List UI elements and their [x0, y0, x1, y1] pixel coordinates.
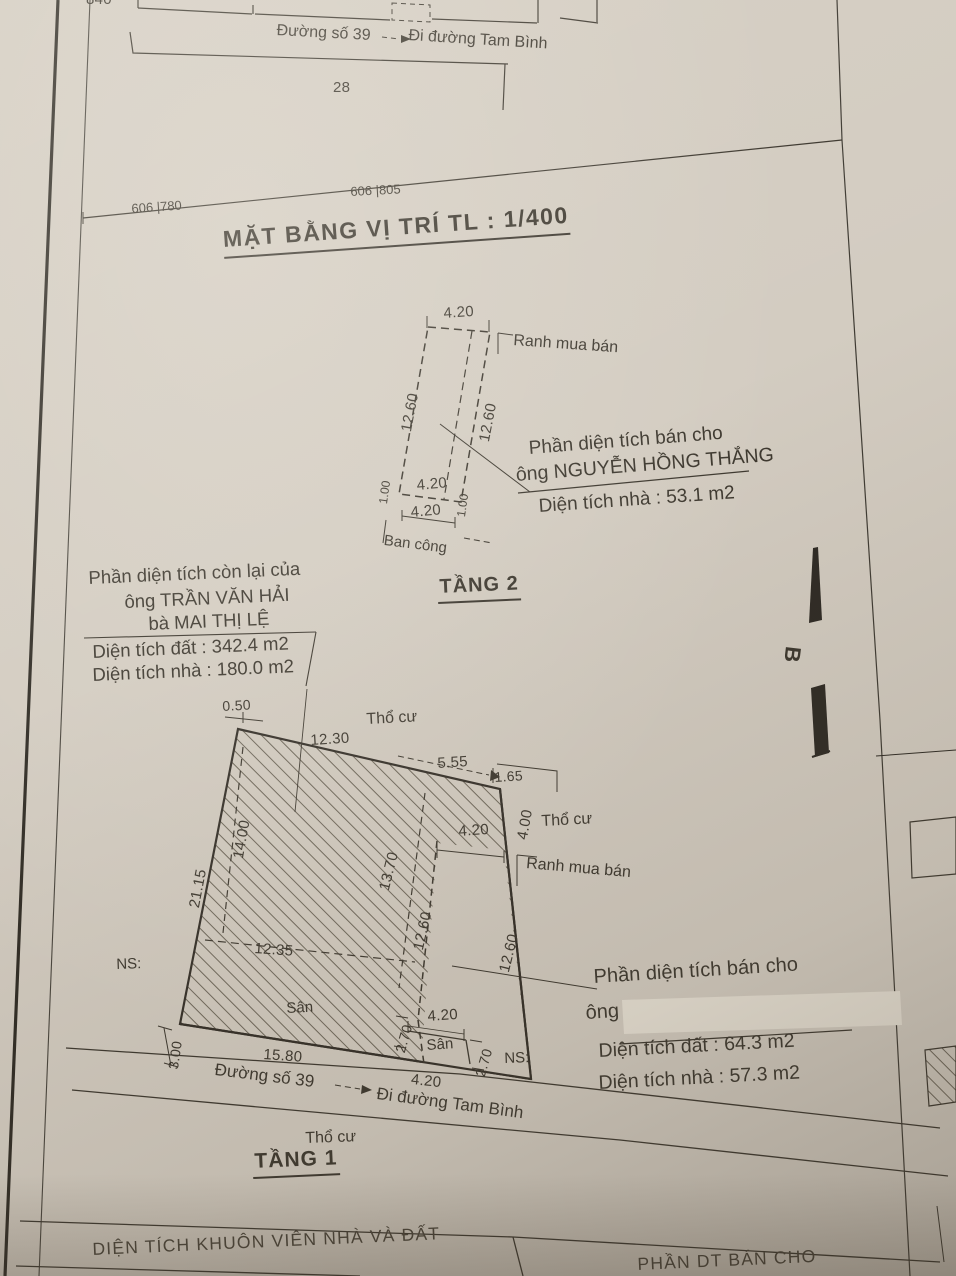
t1-ns-left: NS: [116, 955, 142, 973]
t1-dim-165: 1.65 [494, 767, 523, 785]
tang1-parcel [180, 729, 531, 1079]
t1-dim-420-top: 4.20 [458, 821, 490, 840]
t1-dim-555: 5.55 [437, 753, 468, 772]
t1-tho-cu-top: Thổ cư [366, 708, 418, 729]
t1-san-small: Sân [426, 1035, 454, 1054]
t1-ns-right: NS: [504, 1049, 530, 1067]
t1-dim-050: 0.50 [222, 697, 251, 715]
tang1-heading: TẦNG 1 [252, 1146, 340, 1179]
t2-dim-bottom2: 4.20 [410, 501, 442, 521]
t2-dim-bottom1: 4.20 [416, 474, 448, 494]
t1-dim-420-san: 4.20 [427, 1006, 459, 1025]
t1-san-large: Sân [286, 999, 314, 1018]
t1-tho-cu-right: Thổ cư [541, 810, 593, 831]
survey-mark-805: 606 |805 [350, 182, 401, 200]
plot-840-label: 840 [86, 0, 112, 8]
t1-tho-cu-bottom: Thổ cư [305, 1128, 356, 1148]
scanned-survey-drawing: 840 Đường số 39 Đi đường Tam Bình 28 606… [0, 0, 956, 1276]
legend-boxes [910, 817, 956, 1262]
plot-28-label: 28 [333, 79, 350, 96]
t1-dim-1230: 12.30 [310, 730, 350, 750]
t1-dim-1235: 12.35 [254, 940, 294, 960]
t1-dim-1580: 15.80 [263, 1046, 303, 1066]
north-letter: B [779, 645, 806, 664]
sold-note-ong: ông [585, 1000, 620, 1025]
tang2-heading: TẦNG 2 [437, 572, 521, 604]
t2-dim-top: 4.20 [443, 303, 475, 322]
north-arrow-icon [809, 547, 830, 757]
